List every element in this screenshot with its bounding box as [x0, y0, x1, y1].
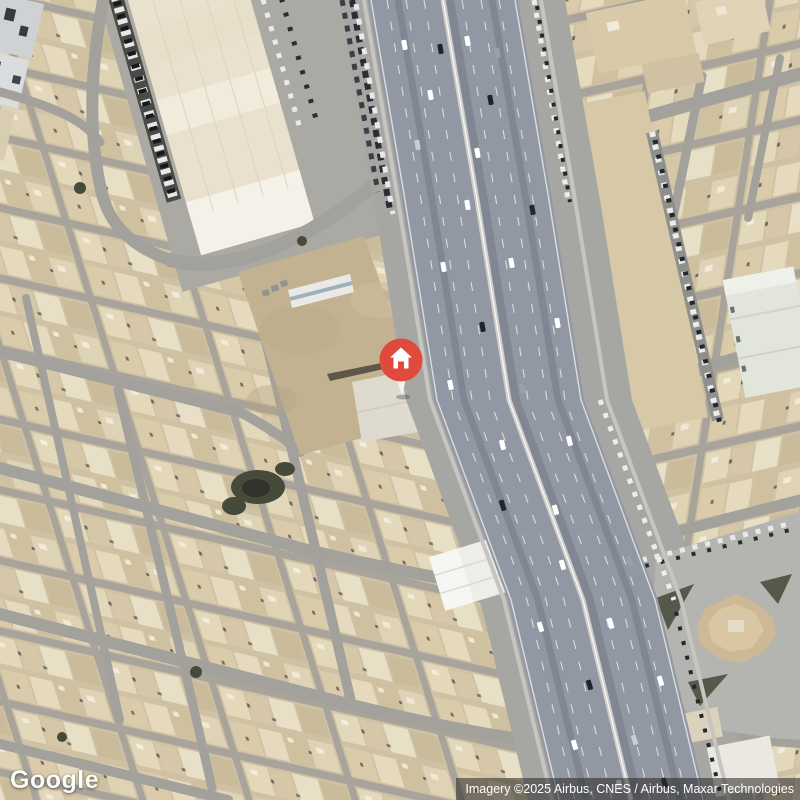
attribution-text: Imagery ©2025 Airbus, CNES / Airbus, Max…	[465, 782, 794, 796]
satellite-map-canvas[interactable]	[0, 0, 800, 800]
map-viewport[interactable]: Google Imagery ©2025 Airbus, CNES / Airb…	[0, 0, 800, 800]
map-attribution: Imagery ©2025 Airbus, CNES / Airbus, Max…	[456, 778, 800, 800]
google-logo[interactable]: Google	[10, 766, 99, 795]
